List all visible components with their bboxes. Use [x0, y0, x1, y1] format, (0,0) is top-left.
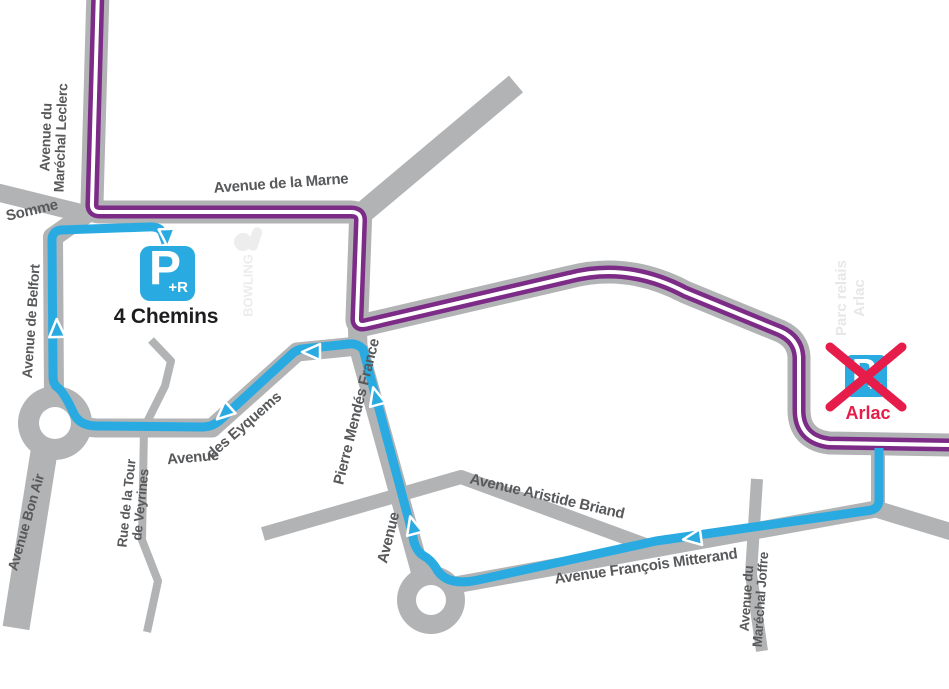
- detour-map: BOWLING Parc relais Arlac: [0, 0, 949, 689]
- park-ride-chemins-name: 4 Chemins: [96, 305, 236, 329]
- park-ride-arlac-name: Arlac: [818, 403, 918, 424]
- park-and-ride-layer: P +R 4 Chemins P +R Arlac: [0, 0, 949, 689]
- park-ride-chemins-icon: P +R: [140, 246, 195, 301]
